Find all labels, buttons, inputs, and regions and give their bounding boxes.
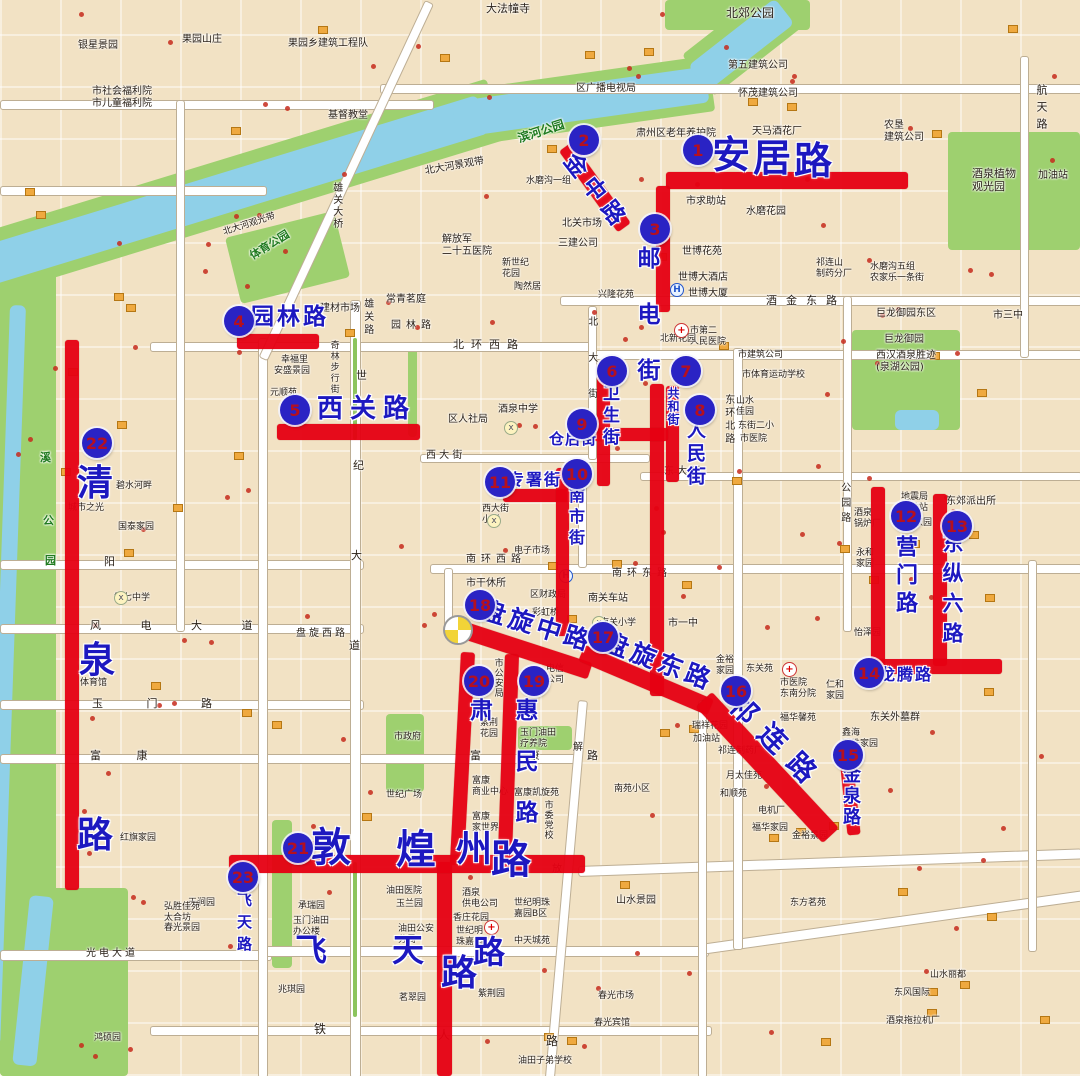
street xyxy=(0,186,267,196)
road-name-label: 东纵六路 xyxy=(941,532,962,652)
map-label: 盘旋西路 xyxy=(296,628,348,640)
building-icon xyxy=(821,1038,831,1046)
cross-icon: + xyxy=(782,662,797,677)
map-label: 茗翠园 xyxy=(399,993,426,1004)
map-label: 碧水河畔 xyxy=(116,481,152,492)
map-label: 酒金东路 xyxy=(766,295,846,308)
road-marker-3: 3 xyxy=(640,214,670,244)
map-label: 加油站 xyxy=(1038,170,1068,182)
map-label: 第五建筑公司 xyxy=(728,60,788,72)
map-label: 紫荆园 xyxy=(478,989,505,1000)
map-label: 公园路 xyxy=(838,482,850,527)
map-label: 纪 xyxy=(353,460,364,473)
building-icon xyxy=(644,48,654,56)
road-name-label: 路 xyxy=(441,956,477,992)
map-label: 基督教堂 xyxy=(328,110,368,122)
map-label: 中天城苑 xyxy=(514,936,550,947)
building-dot xyxy=(416,44,421,49)
building-dot xyxy=(327,890,332,895)
building-dot xyxy=(422,623,427,628)
map-label: 市求助站 xyxy=(686,196,726,208)
building-dot xyxy=(930,730,935,735)
map-label: 铁 xyxy=(314,1022,326,1036)
map-label: 路 xyxy=(546,1034,558,1048)
road-name-label: 路 xyxy=(491,840,531,880)
map-label: 国泰家园 xyxy=(118,522,154,533)
building-dot xyxy=(675,723,680,728)
street xyxy=(176,100,185,632)
road-marker-12: 12 xyxy=(891,501,921,531)
street xyxy=(640,472,1080,481)
building-dot xyxy=(237,350,242,355)
building-dot xyxy=(968,268,973,273)
building-dot xyxy=(867,476,872,481)
road-marker-11: 11 xyxy=(485,467,515,497)
building-dot xyxy=(681,594,686,599)
map-label: 东郊派出所 xyxy=(946,496,996,508)
map-label: 解 xyxy=(573,742,583,754)
building-dot xyxy=(371,64,376,69)
building-dot xyxy=(117,241,122,246)
road-name-label: 园林路 xyxy=(251,306,329,329)
building-icon xyxy=(977,389,987,397)
building-dot xyxy=(285,106,290,111)
road-marker-20: 20 xyxy=(464,666,494,696)
building-dot xyxy=(225,495,230,500)
renovated-road-qingquan-lu xyxy=(65,340,79,890)
road-marker-2: 2 xyxy=(569,125,599,155)
renovated-road-yuanlin-lu xyxy=(237,334,319,349)
renovated-road-xiguan-lu xyxy=(277,424,420,440)
map-label: 果园山庄 xyxy=(182,34,222,46)
street xyxy=(578,848,1080,877)
building-dot xyxy=(79,12,84,17)
building-dot xyxy=(954,926,959,931)
street xyxy=(430,564,1080,574)
map-label: 玉兰园 xyxy=(396,899,423,910)
map-label: 鸿硕园 xyxy=(94,1033,121,1044)
map-label: 道 xyxy=(349,640,360,653)
map-label: 山水 佳园 xyxy=(736,396,754,417)
road-marker-9: 9 xyxy=(567,409,597,439)
park-area xyxy=(386,714,424,792)
road-marker-17: 17 xyxy=(588,622,618,652)
map-label: 怀茂建筑公司 xyxy=(738,88,798,100)
building-icon xyxy=(984,688,994,696)
road-name-label: 肃 xyxy=(470,700,493,723)
street xyxy=(258,338,268,1076)
map-label: 兴隆花苑 xyxy=(598,290,634,301)
building-icon xyxy=(932,130,942,138)
road-name-label: 煌 xyxy=(396,830,436,870)
building-dot xyxy=(533,424,538,429)
building-icon xyxy=(272,721,282,729)
building-dot xyxy=(399,544,404,549)
map-label: 油田子弟学校 xyxy=(518,1056,572,1067)
building-icon xyxy=(362,813,372,821)
building-dot xyxy=(687,971,692,976)
map-label: 东关外墓群 xyxy=(870,712,920,724)
map-label: 新世纪 花园 xyxy=(502,258,529,279)
map-label: 雄关大桥 xyxy=(330,182,342,230)
map-label: 福华家园 xyxy=(752,823,788,834)
map-label: 南关车站 xyxy=(588,593,628,605)
map-label: 市建筑公司 xyxy=(738,350,783,361)
building-icon xyxy=(25,188,35,196)
road-name-label: 飞 xyxy=(295,934,327,966)
map-label: 东环北路 xyxy=(722,394,734,446)
map-label: 市委党校 xyxy=(542,800,553,840)
building-dot xyxy=(484,194,489,199)
street xyxy=(0,100,434,110)
building-icon xyxy=(732,477,742,485)
building-dot xyxy=(792,74,797,79)
road-name-label: 共和街 xyxy=(667,387,679,426)
map-label: 雄关路 xyxy=(361,298,373,337)
building-icon xyxy=(36,211,46,219)
map-label: 市社会福利院 市儿童福利院 xyxy=(92,86,152,110)
building-icon xyxy=(114,293,124,301)
road-name-label: 泉 xyxy=(79,643,115,679)
building-dot xyxy=(917,866,922,871)
map-label: 承瑞园 xyxy=(298,901,325,912)
map-label: 东关苑 xyxy=(746,664,773,675)
map-label: 溪 xyxy=(40,452,51,465)
map-label: 园 xyxy=(45,555,56,568)
map-label: 世纪广场 xyxy=(386,790,422,801)
building-icon xyxy=(987,913,997,921)
road-name-label: 清 xyxy=(77,466,113,502)
map-label: 常青茗庭 xyxy=(386,294,426,306)
building-icon xyxy=(769,834,779,842)
map-label: 酒泉 供电公司 xyxy=(462,888,498,909)
road-name-label: 天 xyxy=(392,934,424,966)
building-dot xyxy=(106,771,111,776)
building-icon xyxy=(567,1037,577,1045)
map-label: 仁和 家园 xyxy=(826,680,844,701)
building-dot xyxy=(981,858,986,863)
school-icon: x xyxy=(504,421,518,435)
building-dot xyxy=(168,40,173,45)
street xyxy=(843,296,852,632)
map-label: 西汉酒泉胜迹 (泉湖公园) xyxy=(876,350,936,374)
map-label: 兆琪园 xyxy=(278,985,305,996)
road-marker-23: 23 xyxy=(228,862,258,892)
building-icon xyxy=(682,581,692,589)
road-name-label: 卫生街 xyxy=(600,384,617,450)
map-label: 东方茗苑 xyxy=(790,898,826,909)
map-label: 市体育运动学校 xyxy=(742,370,805,381)
map-label: 东街二小 xyxy=(738,421,774,432)
building-icon xyxy=(173,504,183,512)
road-marker-6: 6 xyxy=(597,356,627,386)
building-icon xyxy=(840,545,850,553)
road-marker-8: 8 xyxy=(685,395,715,425)
road-name-label: 人民街 xyxy=(685,420,704,489)
map-label: 北大街 xyxy=(585,316,597,424)
building-dot xyxy=(989,272,994,277)
building-dot xyxy=(639,177,644,182)
panxuan-roundabout-icon xyxy=(443,615,473,645)
map-label: 金裕 家园 xyxy=(716,655,734,676)
building-dot xyxy=(432,612,437,617)
building-dot xyxy=(790,79,795,84)
building-dot xyxy=(341,737,346,742)
map-label: 北关市场 xyxy=(562,218,602,230)
map-label: 红旗家园 xyxy=(120,833,156,844)
building-icon xyxy=(660,729,670,737)
road-marker-16: 16 xyxy=(721,676,751,706)
road-marker-4: 4 xyxy=(224,306,254,336)
building-icon xyxy=(345,329,355,337)
map-label: 安盛景园 xyxy=(274,366,310,377)
road-marker-18: 18 xyxy=(465,590,495,620)
map-label: 世博大厦 xyxy=(688,288,728,300)
building-dot xyxy=(468,875,473,880)
street xyxy=(150,342,597,352)
street xyxy=(700,889,1080,955)
map-label: 阳 xyxy=(104,556,115,569)
building-icon xyxy=(960,981,970,989)
building-dot xyxy=(490,320,495,325)
building-dot xyxy=(131,895,136,900)
map-label: 和顺苑 xyxy=(720,789,747,800)
building-dot xyxy=(737,469,742,474)
building-dot xyxy=(924,969,929,974)
building-icon xyxy=(787,103,797,111)
map-label: 酒泉中学 xyxy=(498,404,538,416)
building-dot xyxy=(765,625,770,630)
building-dot xyxy=(627,66,632,71)
road-name-label: 龙腾路 xyxy=(879,667,933,683)
road-name-label: 西关路 xyxy=(317,396,416,422)
road-median xyxy=(353,862,357,1017)
building-dot xyxy=(203,269,208,274)
street xyxy=(590,350,1080,360)
map-label: 电子市场 xyxy=(514,546,550,557)
building-icon xyxy=(126,304,136,312)
map-label: 银星景园 xyxy=(78,40,118,52)
building-dot xyxy=(82,809,87,814)
map-label: 香庄花园 xyxy=(453,913,489,924)
building-dot xyxy=(800,532,805,537)
road-name-label: 路 xyxy=(77,818,113,854)
road-name-label: 南市街 xyxy=(567,487,583,550)
map-label: 世博花苑 xyxy=(682,246,722,258)
building-icon xyxy=(547,145,557,153)
map-label: 世纪明珠 嘉园B区 xyxy=(514,898,550,919)
map-label: 奇林步行街 xyxy=(328,340,339,395)
map-label: 航天路 xyxy=(1034,84,1047,135)
building-dot xyxy=(582,1044,587,1049)
river xyxy=(895,410,939,430)
map-label: 酒泉植物 观光园 xyxy=(972,168,1016,194)
building-dot xyxy=(815,616,820,621)
building-dot xyxy=(90,716,95,721)
street xyxy=(698,700,707,1076)
map-label: 区人社局 xyxy=(448,414,488,426)
building-dot xyxy=(769,1030,774,1035)
map-label: 公 xyxy=(43,515,54,528)
road-name-label: 居 xyxy=(753,139,791,177)
building-dot xyxy=(368,790,373,795)
building-dot xyxy=(141,900,146,905)
building-dot xyxy=(228,944,233,949)
road-name-label: 州 xyxy=(456,832,492,868)
map-label: 山水丽都 xyxy=(930,970,966,981)
street xyxy=(1028,560,1037,952)
map-label: 三建公司 xyxy=(558,238,598,250)
map-label: 水磨沟五组 农家乐一条街 xyxy=(870,262,924,283)
building-dot xyxy=(542,968,547,973)
building-dot xyxy=(246,488,251,493)
map-label: 农垦 建筑公司 xyxy=(884,120,924,144)
road-name-label: 邮电街 xyxy=(634,246,657,414)
building-icon xyxy=(231,127,241,135)
building-dot xyxy=(182,638,187,643)
building-icon xyxy=(318,26,328,34)
renovated-road-yingmen-lu xyxy=(871,487,885,669)
building-dot xyxy=(633,561,638,566)
map-label: 电机厂 xyxy=(758,806,785,817)
road-name-label: 路 xyxy=(473,936,505,968)
building-icon xyxy=(234,452,244,460)
road-marker-22: 22 xyxy=(82,428,112,458)
hotel-icon: H xyxy=(670,283,684,297)
map-label: 巨龙御园 xyxy=(884,334,924,346)
building-dot xyxy=(53,366,58,371)
road-marker-14: 14 xyxy=(854,658,884,688)
street xyxy=(380,84,1080,94)
map-label: 市三中 xyxy=(993,310,1023,322)
map-label: 世博大酒店 xyxy=(678,272,728,284)
cross-icon: + xyxy=(674,323,689,338)
map-label: 春光宾馆 xyxy=(594,1018,630,1029)
building-dot xyxy=(635,951,640,956)
building-dot xyxy=(1052,74,1057,79)
map-label: 果园乡建筑工程队 xyxy=(288,38,368,50)
map-label: 市干休所 xyxy=(466,578,506,590)
building-icon xyxy=(585,51,595,59)
map-label: 大 xyxy=(351,550,362,563)
building-dot xyxy=(888,788,893,793)
map-label: 水磨沟一组 xyxy=(526,176,571,187)
building-dot xyxy=(209,640,214,645)
map-label: 福华馨苑 xyxy=(780,713,816,724)
building-dot xyxy=(623,337,628,342)
city-map-canvas: 大法幢寺北郊公园银星景园果园山庄果园乡建筑工程队第五建筑公司区广播电视局怀茂建筑… xyxy=(0,0,1080,1076)
school-icon: x xyxy=(487,514,501,528)
building-dot xyxy=(485,1039,490,1044)
map-label: 弘胜佳苑 太合坊 春光景园 xyxy=(164,902,200,934)
map-label: 富 康 xyxy=(90,750,164,763)
building-icon xyxy=(1008,25,1018,33)
building-dot xyxy=(206,242,211,247)
map-label: 祁连山 制药分厂 xyxy=(816,258,852,279)
map-label: 风 电 大 道 xyxy=(90,620,271,633)
building-icon xyxy=(117,421,127,429)
road-name-label: 路 xyxy=(794,142,832,180)
building-icon xyxy=(124,549,134,557)
road-marker-1: 1 xyxy=(683,135,713,165)
map-label: 大法幢寺 xyxy=(486,3,530,16)
building-icon xyxy=(620,881,630,889)
map-label: 北环西路 xyxy=(453,339,525,352)
map-label: 区广播电视局 xyxy=(576,83,636,95)
building-dot xyxy=(128,1047,133,1052)
map-label: 东风国际 xyxy=(894,988,930,999)
building-icon xyxy=(985,594,995,602)
road-name-label: 敦 xyxy=(311,828,351,868)
building-dot xyxy=(503,548,508,553)
map-label: 幸福里 xyxy=(281,355,308,366)
road-marker-19: 19 xyxy=(519,666,549,696)
building-icon xyxy=(612,560,622,568)
map-label: 市一中 xyxy=(668,618,698,630)
road-marker-21: 21 xyxy=(283,833,313,863)
building-icon xyxy=(1040,1016,1050,1024)
map-label: 富 康 路 xyxy=(470,750,620,763)
map-label: 油田医院 xyxy=(386,886,422,897)
building-icon xyxy=(151,682,161,690)
map-label: 酒泉拖拉机厂 xyxy=(886,1016,940,1027)
road-marker-10: 10 xyxy=(562,459,592,489)
map-label: 陶然居 xyxy=(514,282,541,293)
school-icon: x xyxy=(114,591,128,605)
road-name-label: 飞天路 xyxy=(236,892,251,958)
building-dot xyxy=(816,464,821,469)
road-name-label: 安 xyxy=(712,136,750,174)
map-label: 市医院 xyxy=(740,434,767,445)
map-label: 光电大道 xyxy=(86,948,138,960)
building-dot xyxy=(841,339,846,344)
building-dot xyxy=(133,345,138,350)
building-dot xyxy=(305,614,310,619)
road-marker-13: 13 xyxy=(942,511,972,541)
map-label: 解放军 二十五医院 xyxy=(442,234,492,258)
building-icon xyxy=(440,54,450,62)
map-label: 市医院 东南分院 xyxy=(780,678,816,699)
road-name-label: 营门路 xyxy=(893,535,915,619)
map-label: 春光市场 xyxy=(598,991,634,1002)
building-icon xyxy=(242,709,252,717)
map-label: 西 大 街 xyxy=(426,450,462,462)
building-dot xyxy=(825,392,830,397)
map-label: 山水景园 xyxy=(616,895,656,907)
map-label: 世 xyxy=(356,370,367,383)
building-dot xyxy=(1001,826,1006,831)
road-name-label: 专署街 xyxy=(508,472,562,488)
building-dot xyxy=(650,813,655,818)
map-label: 南苑小区 xyxy=(614,784,650,795)
map-label: 水磨花园 xyxy=(746,206,786,218)
map-label: 玉 门 路 xyxy=(92,698,232,711)
road-name-label: 惠民路 xyxy=(512,698,535,851)
road-marker-15: 15 xyxy=(833,740,863,770)
map-label: 北郊公园 xyxy=(726,6,774,20)
building-dot xyxy=(821,223,826,228)
road-marker-5: 5 xyxy=(280,395,310,425)
building-icon xyxy=(898,888,908,896)
road-name-label: 金泉路 xyxy=(841,765,859,828)
road-marker-7: 7 xyxy=(671,356,701,386)
map-label: 园林路 xyxy=(391,320,436,332)
building-dot xyxy=(1039,754,1044,759)
map-label: 巨龙御园东区 xyxy=(876,308,936,320)
map-label: 市政府 xyxy=(394,732,421,743)
map-label: 加油站 xyxy=(693,734,720,745)
building-dot xyxy=(1050,158,1055,163)
